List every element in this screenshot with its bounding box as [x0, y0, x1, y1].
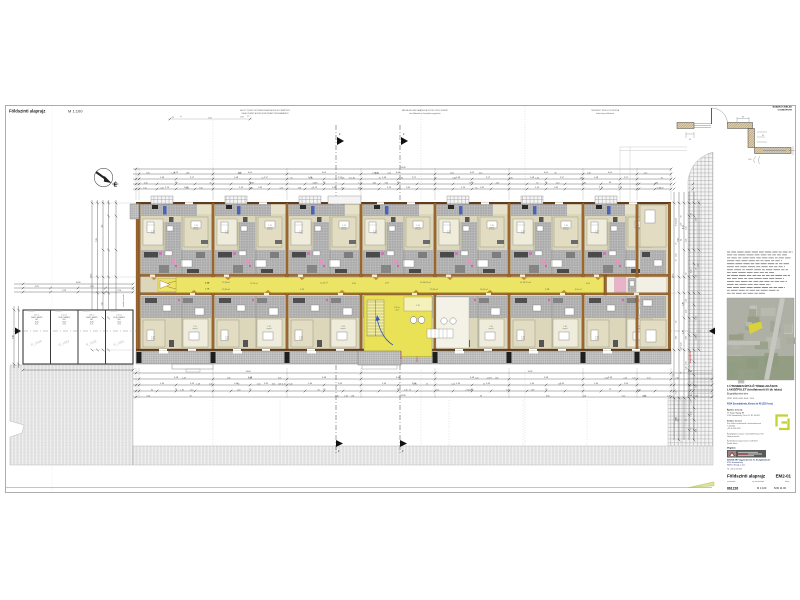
svg-text:13,45 m²: 13,45 m² — [250, 282, 258, 285]
svg-text:szoba: szoba — [151, 233, 155, 235]
svg-text:12,40 m²: 12,40 m² — [320, 282, 328, 285]
svg-text:1,98: 1,98 — [240, 117, 244, 119]
svg-text:1,20: 1,20 — [676, 254, 678, 257]
svg-text:5,15: 5,15 — [280, 187, 284, 189]
svg-text:nappali: nappali — [488, 328, 494, 330]
svg-text:75: 75 — [379, 177, 381, 179]
svg-text:szoba: szoba — [447, 233, 451, 235]
svg-text:1,48: 1,48 — [298, 187, 302, 189]
svg-text:4034 Szombathely, Kinizsi út 4: 4034 Szombathely, Kinizsi út 48 (220 hrs… — [727, 403, 773, 406]
svg-text:90: 90 — [475, 187, 477, 189]
svg-text:szoba: szoba — [595, 233, 599, 235]
svg-text:90: 90 — [480, 395, 482, 397]
svg-text:1,48: 1,48 — [469, 389, 473, 391]
svg-text:3,65: 3,65 — [313, 182, 317, 184]
svg-text:szoba: szoba — [521, 233, 525, 235]
svg-text:2,40: 2,40 — [144, 182, 148, 184]
svg-text:2,10: 2,10 — [696, 384, 698, 388]
svg-text:szoba: szoba — [373, 233, 377, 235]
svg-text:CSOMÓPONT: CSOMÓPONT — [778, 109, 793, 112]
svg-text:Földszinti alaprajz: Földszinti alaprajz — [727, 474, 766, 479]
svg-text:2,10: 2,10 — [655, 182, 659, 184]
svg-text:5,15: 5,15 — [644, 172, 648, 174]
svg-text:2,4: 2,4 — [102, 303, 104, 306]
svg-text:75: 75 — [676, 259, 678, 261]
svg-text:75: 75 — [676, 224, 678, 226]
svg-text:1.36: 1.36 — [563, 326, 566, 328]
svg-text:1.10: 1.10 — [151, 231, 154, 233]
svg-text:75: 75 — [469, 182, 471, 184]
svg-text:3,65: 3,65 — [686, 336, 688, 340]
svg-text:2,10: 2,10 — [436, 389, 440, 391]
svg-text:4,05: 4,05 — [686, 309, 688, 313]
svg-text:5,15: 5,15 — [647, 377, 651, 379]
svg-text:5,15: 5,15 — [143, 187, 147, 189]
svg-text:1,48: 1,48 — [278, 383, 282, 385]
svg-text:90: 90 — [558, 383, 560, 385]
svg-text:1.16: 1.16 — [564, 225, 567, 227]
svg-text:90: 90 — [290, 177, 292, 179]
svg-text:1.15: 1.15 — [521, 231, 524, 233]
svg-text:4,05: 4,05 — [373, 182, 377, 184]
svg-text:1,48: 1,48 — [171, 172, 175, 174]
svg-text:1,48: 1,48 — [681, 347, 683, 351]
svg-text:1.41 sz.: 1.41 sz. — [34, 315, 40, 317]
svg-text:14,72: 14,72 — [673, 274, 675, 279]
svg-text:90: 90 — [742, 117, 744, 119]
svg-text:861226: 861226 — [727, 487, 738, 491]
svg-text:17,96 m²: 17,96 m² — [222, 281, 230, 284]
svg-text:75: 75 — [409, 389, 411, 391]
svg-text:ADOTT ÖVEZETI ELŐÍRÁSOKNAK MEG: ADOTT ÖVEZETI ELŐÍRÁSOKNAK MEGFELELŐ BEÉ… — [240, 109, 290, 112]
svg-text:4,05: 4,05 — [686, 239, 688, 243]
svg-text:4,05: 4,05 — [681, 342, 683, 346]
svg-text:1.13: 1.13 — [373, 231, 376, 233]
svg-text:1,48: 1,48 — [250, 182, 254, 184]
svg-text:1.35: 1.35 — [489, 326, 492, 328]
svg-text:2,40: 2,40 — [683, 330, 685, 334]
svg-text:5,15: 5,15 — [479, 172, 483, 174]
svg-text:4,05: 4,05 — [696, 429, 698, 433]
svg-text:8,00 m²: 8,00 m² — [575, 288, 582, 291]
svg-text:HRSZ: 64/38, 64/39, 64/40 · 20: HRSZ: 64/38, 64/39, 64/40 · 2016 — [727, 398, 754, 400]
svg-text:TERVEZETT ÉPÜLET KONTÚRJA: TERVEZETT ÉPÜLET KONTÚRJA — [591, 109, 620, 112]
svg-text:szoba: szoba — [595, 339, 599, 341]
svg-text:szoba: szoba — [225, 233, 229, 235]
svg-text:1,20: 1,20 — [681, 223, 683, 227]
svg-text:1.44 sz.: 1.44 sz. — [116, 315, 122, 317]
svg-text:2,40: 2,40 — [452, 177, 456, 179]
svg-text:90: 90 — [696, 275, 698, 277]
svg-text:6,75: 6,75 — [63, 324, 66, 326]
svg-text:távlati ütem jelölésével: távlati ütem jelölésével — [596, 112, 615, 115]
svg-text:26,09 m²: 26,09 m² — [480, 288, 488, 291]
svg-text:75: 75 — [426, 383, 428, 385]
svg-text:5,40: 5,40 — [13, 335, 15, 339]
svg-text:90: 90 — [676, 321, 678, 323]
svg-text:79,31 m²: 79,31 m² — [430, 288, 438, 291]
svg-text:3,2: 3,2 — [678, 419, 680, 422]
svg-text:Megbízó:: Megbízó: — [727, 448, 736, 450]
svg-text:1.33: 1.33 — [341, 326, 344, 328]
svg-text:6,1: 6,1 — [673, 374, 675, 377]
svg-text:1,98: 1,98 — [208, 117, 212, 119]
svg-text:nappali: nappali — [266, 328, 272, 330]
svg-text:1,48: 1,48 — [182, 377, 186, 379]
svg-text:5,15: 5,15 — [622, 395, 626, 397]
svg-text:90: 90 — [341, 187, 343, 189]
svg-text:7,05: 7,05 — [96, 238, 98, 242]
svg-text:8,9: 8,9 — [698, 264, 700, 267]
svg-text:1,20: 1,20 — [475, 377, 479, 379]
svg-text:L4 30,57 m²: L4 30,57 m² — [520, 281, 531, 284]
svg-text:1,85: 1,85 — [180, 389, 184, 391]
svg-text:1.13: 1.13 — [342, 225, 345, 227]
svg-text:45: 45 — [689, 139, 691, 141]
svg-text:3,65: 3,65 — [146, 395, 150, 397]
svg-text:szoba: szoba — [151, 339, 155, 341]
svg-text:kerítés vonala: kerítés vonala — [122, 294, 125, 307]
svg-text:14,04: 14,04 — [245, 371, 251, 373]
svg-text:1,85: 1,85 — [413, 383, 417, 385]
svg-text:1.32: 1.32 — [299, 337, 302, 339]
svg-text:14,72: 14,72 — [91, 274, 93, 279]
svg-text:1,48: 1,48 — [531, 389, 535, 391]
svg-text:3,65: 3,65 — [385, 182, 389, 184]
svg-text:3,65: 3,65 — [643, 395, 647, 397]
svg-text:6,75: 6,75 — [118, 324, 121, 326]
svg-text:1,48: 1,48 — [667, 395, 671, 397]
svg-text:5,15: 5,15 — [632, 377, 636, 379]
svg-text:+36 30 234 5678: +36 30 234 5678 — [727, 428, 741, 430]
svg-text:6,75: 6,75 — [90, 324, 93, 326]
svg-text:2,40: 2,40 — [686, 366, 688, 370]
svg-text:1,85: 1,85 — [580, 177, 584, 179]
svg-text:90: 90 — [151, 389, 153, 391]
svg-text:75: 75 — [251, 187, 253, 189]
svg-text:1.14: 1.14 — [416, 225, 419, 227]
svg-text:1,20: 1,20 — [404, 389, 408, 391]
svg-text:2,10: 2,10 — [691, 269, 693, 273]
svg-text:1,85: 1,85 — [351, 177, 355, 179]
svg-text:2,40: 2,40 — [335, 395, 339, 397]
svg-text:1,48: 1,48 — [344, 395, 348, 397]
svg-text:90: 90 — [661, 177, 663, 179]
svg-text:90: 90 — [681, 239, 683, 241]
svg-text:53,30: 53,30 — [400, 395, 406, 397]
svg-text:90: 90 — [434, 177, 436, 179]
svg-text:75: 75 — [691, 428, 693, 430]
svg-text:2,10: 2,10 — [686, 299, 688, 303]
svg-text:okai földmérő és középület meg: okai földmérő és középület megépítése — [409, 112, 440, 115]
svg-text:Welther Károly u. 4-6.: Welther Károly u. 4-6. — [727, 464, 746, 467]
svg-text:nappali: nappali — [267, 227, 273, 229]
svg-text:1,20: 1,20 — [691, 400, 693, 404]
svg-text:1.16: 1.16 — [595, 231, 598, 233]
svg-text:75: 75 — [349, 177, 351, 179]
svg-text:1,20: 1,20 — [582, 395, 586, 397]
svg-text:1.43 sz.: 1.43 sz. — [89, 315, 95, 317]
svg-text:szoba: szoba — [299, 233, 303, 235]
svg-text:4,25: 4,25 — [683, 225, 685, 229]
svg-text:1.11: 1.11 — [225, 231, 228, 233]
svg-text:25: 25 — [172, 117, 174, 119]
svg-text:4,05: 4,05 — [257, 383, 261, 385]
svg-text:16,45: 16,45 — [90, 321, 94, 323]
svg-text:Építész tervező:: Építész tervező: — [727, 409, 743, 412]
svg-text:nappali: nappali — [563, 227, 569, 229]
svg-text:90: 90 — [237, 383, 239, 385]
svg-text:2,40: 2,40 — [675, 377, 679, 379]
svg-text:9700 Szombathely,: 9700 Szombathely, — [727, 461, 744, 464]
svg-text:2,10: 2,10 — [691, 213, 693, 217]
svg-text:nappali: nappali — [415, 227, 421, 229]
svg-text:nappali: nappali — [192, 328, 198, 330]
svg-text:szoba: szoba — [299, 339, 303, 341]
svg-text:2,10: 2,10 — [190, 389, 194, 391]
svg-text:75: 75 — [490, 377, 492, 379]
svg-text:57,02 m²: 57,02 m² — [222, 288, 230, 291]
svg-text:75: 75 — [483, 383, 485, 385]
svg-text:2,10: 2,10 — [686, 226, 688, 230]
svg-text:6,75: 6,75 — [35, 324, 38, 326]
svg-text:2,10: 2,10 — [372, 172, 376, 174]
svg-text:90: 90 — [210, 182, 212, 184]
svg-text:1,48: 1,48 — [495, 377, 499, 379]
svg-text:5,15: 5,15 — [309, 177, 313, 179]
svg-text:BABAKOCSIBLAK: BABAKOCSIBLAK — [773, 106, 793, 109]
svg-text:M 1:100: M 1:100 — [68, 109, 83, 114]
svg-text:7,05: 7,05 — [678, 238, 680, 242]
svg-text:3,65: 3,65 — [696, 218, 698, 222]
svg-text:30: 30 — [762, 135, 764, 137]
svg-text:2,40: 2,40 — [209, 383, 213, 385]
svg-text:1.35: 1.35 — [416, 305, 420, 307]
svg-text:16,45: 16,45 — [117, 321, 121, 323]
svg-text:1.11: 1.11 — [194, 225, 197, 227]
svg-text:4,05: 4,05 — [691, 411, 693, 415]
svg-text:LAKÓÉPÜLET (térdfalemelt 50 db: LAKÓÉPÜLET (térdfalemelt 50 db lakás) — [727, 387, 782, 392]
svg-text:4,05: 4,05 — [238, 172, 242, 174]
svg-text:nappali: nappali — [562, 328, 568, 330]
svg-text:előtér: előtér — [395, 308, 400, 311]
svg-text:EM2-01: EM2-01 — [776, 474, 792, 479]
svg-text:1.30: 1.30 — [151, 337, 154, 339]
svg-text:1,48: 1,48 — [196, 383, 200, 385]
svg-text:2,10: 2,10 — [676, 391, 678, 395]
svg-text:5,15: 5,15 — [451, 383, 455, 385]
svg-text:1.14: 1.14 — [447, 231, 450, 233]
svg-text:75: 75 — [686, 419, 688, 421]
svg-text:2,10: 2,10 — [624, 377, 628, 379]
svg-text:90: 90 — [190, 395, 192, 397]
svg-text:1.31: 1.31 — [225, 337, 228, 339]
svg-text:munkaszám: munkaszám — [727, 481, 736, 483]
svg-text:2,10: 2,10 — [604, 377, 608, 379]
svg-text:É: É — [114, 181, 118, 189]
svg-text:szoba: szoba — [521, 339, 525, 341]
svg-text:5,15: 5,15 — [358, 182, 362, 184]
svg-text:53,30: 53,30 — [400, 167, 406, 169]
svg-text:4,05: 4,05 — [686, 361, 688, 365]
svg-text:90: 90 — [696, 268, 698, 270]
svg-text:4,05: 4,05 — [278, 377, 282, 379]
svg-text:2,40: 2,40 — [676, 417, 678, 421]
svg-text:MÉLYALAPOZÁSI JAVASLAT A KIVIT: MÉLYALAPOZÁSI JAVASLAT A KIVITELI TERV S… — [402, 109, 449, 112]
svg-text:90: 90 — [555, 172, 557, 174]
svg-text:SZOVA ZRt Vagyonkezelő és Szol: SZOVA ZRt Vagyonkezelő és Szolgáltató Zr… — [727, 458, 770, 461]
svg-text:3,65: 3,65 — [272, 383, 276, 385]
svg-text:1,48: 1,48 — [582, 182, 586, 184]
svg-text:75: 75 — [311, 187, 313, 189]
svg-text:1,85: 1,85 — [146, 172, 150, 174]
svg-text:1,85: 1,85 — [535, 177, 539, 179]
svg-text:1,20: 1,20 — [676, 218, 678, 222]
svg-text:nappali: nappali — [341, 227, 347, 229]
svg-text:1,48: 1,48 — [351, 395, 355, 397]
svg-text:75: 75 — [691, 359, 693, 361]
svg-text:3,65: 3,65 — [676, 336, 678, 340]
svg-text:1.32: 1.32 — [267, 326, 270, 328]
svg-text:3,65: 3,65 — [450, 172, 454, 174]
svg-text:L3 40,93 m²: L3 40,93 m² — [420, 281, 431, 284]
svg-text:4,2: 4,2 — [102, 225, 104, 228]
svg-text:3,65: 3,65 — [199, 187, 203, 189]
svg-text:2,40: 2,40 — [696, 316, 698, 320]
svg-text:5,15: 5,15 — [185, 187, 189, 189]
svg-text:1.42 sz.: 1.42 sz. — [61, 315, 67, 317]
svg-text:3,65: 3,65 — [695, 395, 699, 397]
svg-text:3,65: 3,65 — [248, 377, 252, 379]
svg-text:16,45: 16,45 — [62, 321, 66, 323]
svg-text:2,10: 2,10 — [556, 182, 560, 184]
svg-text:1.12: 1.12 — [268, 225, 271, 227]
svg-text:bejárat: bejárat — [416, 356, 419, 362]
svg-text:3,65: 3,65 — [546, 395, 550, 397]
svg-text:1.36: 1.36 — [595, 337, 598, 339]
svg-text:3,65: 3,65 — [358, 187, 362, 189]
svg-text:szoba: szoba — [225, 339, 229, 341]
svg-text:90: 90 — [686, 273, 688, 275]
svg-text:1.15: 1.15 — [490, 225, 493, 227]
svg-text:főbejárat: főbejárat — [400, 351, 403, 359]
svg-text:5,15: 5,15 — [282, 383, 286, 385]
svg-text:1,20: 1,20 — [509, 177, 513, 179]
svg-text:4,05: 4,05 — [496, 182, 500, 184]
svg-text:Szabó János: Szabó János — [727, 443, 737, 445]
svg-text:Gépészmérnök: Gépészmérnök — [727, 436, 739, 438]
svg-text:5/30 11:00: 5/30 11:00 — [774, 486, 787, 490]
svg-text:90: 90 — [536, 182, 538, 184]
svg-text:1,85: 1,85 — [227, 377, 231, 379]
svg-text:90: 90 — [681, 216, 683, 218]
svg-text:75: 75 — [676, 243, 678, 245]
svg-text:1.31: 1.31 — [193, 326, 196, 328]
svg-text:16,45: 16,45 — [35, 321, 39, 323]
svg-text:1.35: 1.35 — [521, 337, 524, 339]
svg-text:IDEÁL ÖVEZET A KIJELÖLENI KÍVÁ: IDEÁL ÖVEZET A KIJELÖLENI KÍVÁNT TELEKHA… — [242, 112, 289, 115]
svg-text:90: 90 — [401, 177, 403, 179]
svg-text:1,20: 1,20 — [237, 389, 241, 391]
svg-text:2,40: 2,40 — [696, 334, 698, 338]
svg-text:nappali: nappali — [340, 328, 346, 330]
svg-text:1,20: 1,20 — [637, 389, 641, 391]
svg-text:75: 75 — [681, 372, 683, 374]
svg-text:2,40: 2,40 — [289, 383, 293, 385]
svg-text:5,15: 5,15 — [388, 172, 392, 174]
svg-text:M 1:100: M 1:100 — [757, 486, 767, 490]
svg-text:1,85: 1,85 — [506, 389, 510, 391]
svg-text:75: 75 — [261, 177, 263, 179]
svg-text:1,48: 1,48 — [186, 172, 190, 174]
svg-text:1,00: 1,00 — [748, 159, 751, 161]
svg-text:90: 90 — [318, 389, 320, 391]
svg-text:2,40: 2,40 — [587, 172, 591, 174]
svg-text:1.12: 1.12 — [299, 231, 302, 233]
svg-text:Földszinti alaprajz: Földszinti alaprajz — [9, 109, 45, 114]
svg-text:1,48: 1,48 — [341, 177, 345, 179]
svg-text:2,40: 2,40 — [683, 302, 685, 306]
svg-text:5,15: 5,15 — [660, 187, 664, 189]
svg-text:9700 Szombathely, Fő tér 21. É: 9700 Szombathely, Fő tér 21. É1 18-0121 — [727, 414, 760, 417]
svg-text:Tel: +36 94 312 345: Tel: +36 94 312 345 — [727, 469, 742, 471]
svg-text:nappali: nappali — [193, 227, 199, 229]
svg-text:2,10: 2,10 — [160, 187, 164, 189]
svg-text:Engedélyezési terv: Engedélyezési terv — [727, 392, 749, 395]
svg-text:psz: psz — [247, 116, 250, 118]
svg-text:nappali: nappali — [489, 227, 495, 229]
